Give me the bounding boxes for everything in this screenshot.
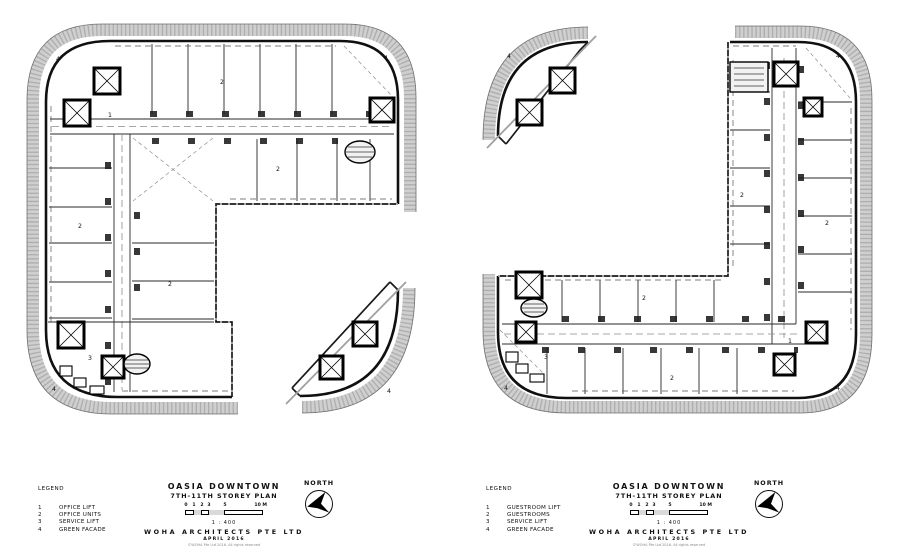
plan-left-office: 4 4 4 4 2 2 2 2 1 3: [27, 24, 416, 414]
lift-core-top-right: [345, 98, 394, 163]
mark-green-facade: 4: [836, 53, 840, 60]
mark-service-lift: 3: [544, 354, 548, 361]
mark-green-facade: 4: [507, 53, 511, 60]
corner-fragment-bottom-right: [286, 282, 406, 404]
issue-date: APRIL 2016: [134, 537, 314, 542]
firm-name: WOHA ARCHITECTS PTE LTD: [579, 528, 759, 536]
mark-green-facade: 4: [387, 388, 391, 395]
mark-green-facade: 4: [52, 386, 56, 393]
sheet-title: 7TH-11TH STOREY PLAN: [579, 492, 759, 500]
scale-ratio: 1 : 400: [134, 520, 314, 526]
service-core-bottom-left: [58, 322, 150, 394]
scale-bar: 0 1 2 3 5 10 M: [630, 503, 708, 519]
north-label: NORTH: [296, 479, 342, 487]
corner-fragment-top-left: [487, 36, 596, 148]
service-core-bottom-left: [506, 272, 547, 382]
mark-green-facade: 4: [836, 385, 840, 392]
courtyard-wall: [216, 204, 398, 397]
plan-right-hotel: 4 4 4 4 2 2 2 2 1 3: [483, 26, 872, 413]
north-arrow-left: NORTH: [296, 479, 342, 521]
mark-green-facade: 4: [56, 56, 60, 63]
mark-guestrooms: 2: [740, 192, 744, 199]
north-label: NORTH: [746, 479, 792, 487]
mark-office-units: 2: [78, 223, 82, 230]
floor-plan-canvas: 4 4 4 4 2 2 2 2 1 3: [0, 0, 900, 470]
copyright-note: ©WOHA Pte Ltd 2016. All rights reserved: [579, 543, 759, 547]
mark-guestrooms: 2: [825, 220, 829, 227]
mark-office-units: 2: [220, 79, 224, 86]
title-block-right: OASIA DOWNTOWN 7TH-11TH STOREY PLAN 0 1 …: [579, 482, 759, 547]
mark-guestroom-lift: 1: [788, 338, 792, 345]
mark-green-facade: 4: [504, 385, 508, 392]
mark-office-units: 2: [168, 281, 172, 288]
lift-core-bottom-right: [774, 322, 827, 375]
title-block-left: OASIA DOWNTOWN 7TH-11TH STOREY PLAN 0 1 …: [134, 482, 314, 547]
sheet-title: 7TH-11TH STOREY PLAN: [134, 492, 314, 500]
mark-office-lift: 1: [108, 112, 112, 119]
mark-guestrooms: 2: [670, 375, 674, 382]
scale-bar: 0 1 2 3 5 10 M: [185, 503, 263, 519]
mark-guestrooms: 2: [642, 295, 646, 302]
north-arrow-right: NORTH: [746, 479, 792, 521]
north-compass-icon: [302, 487, 336, 521]
project-title: OASIA DOWNTOWN: [134, 482, 314, 491]
firm-name: WOHA ARCHITECTS PTE LTD: [134, 528, 314, 536]
copyright-note: ©WOHA Pte Ltd 2016. All rights reserved: [134, 543, 314, 547]
exterior-wall: [498, 42, 856, 398]
scale-ratio: 1 : 400: [579, 520, 759, 526]
stair: [730, 62, 768, 92]
boundary-diagonal: [286, 282, 406, 404]
mark-service-lift: 3: [88, 355, 92, 362]
lift-core-top: [730, 62, 822, 116]
mark-green-facade: 4: [384, 55, 388, 62]
issue-date: APRIL 2016: [579, 537, 759, 542]
courtyard-wall: [498, 42, 728, 276]
drawing-sheet: 4 4 4 4 2 2 2 2 1 3: [0, 0, 900, 557]
mark-office-units: 2: [276, 166, 280, 173]
project-title: OASIA DOWNTOWN: [579, 482, 759, 491]
north-compass-icon: [752, 487, 786, 521]
green-facade-band: [33, 30, 410, 408]
unit-partitions: [547, 92, 852, 394]
